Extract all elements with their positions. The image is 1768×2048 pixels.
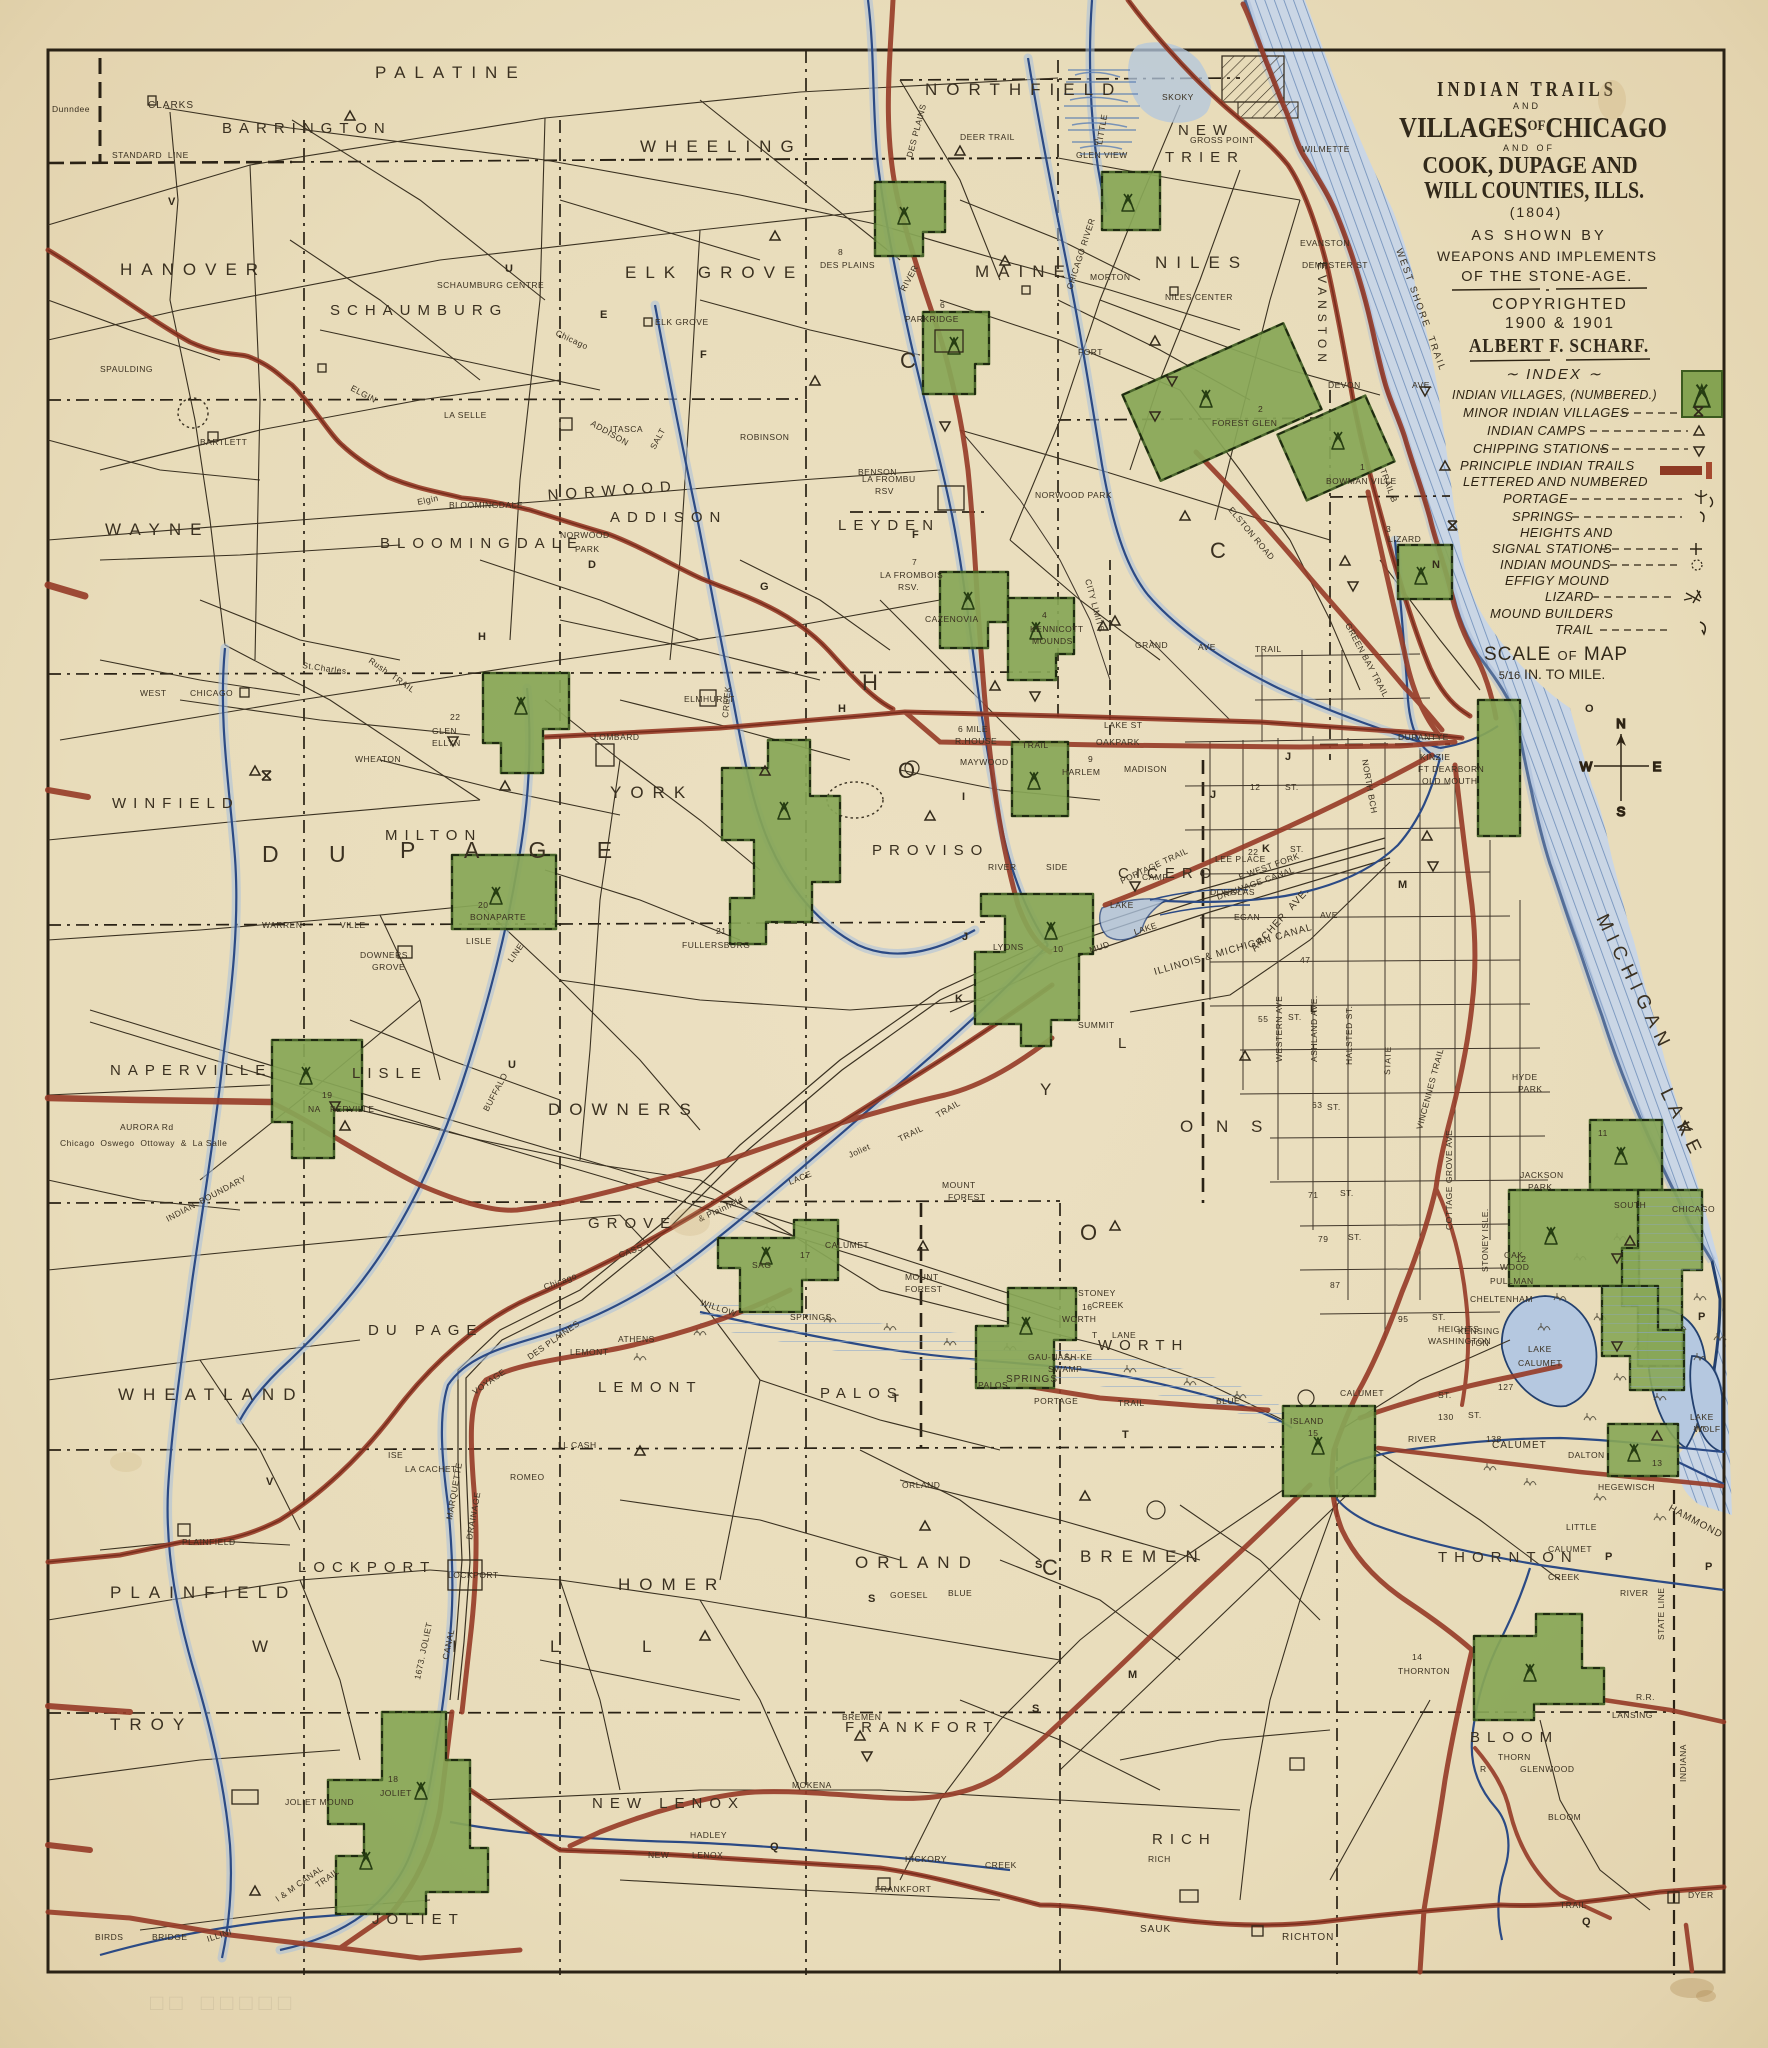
- svg-text:TON: TON: [1470, 1338, 1489, 1348]
- svg-text:SUMMIT: SUMMIT: [1078, 1020, 1115, 1030]
- svg-text:LISLE: LISLE: [466, 936, 492, 946]
- svg-text:LEYDEN: LEYDEN: [838, 517, 940, 534]
- svg-text:BARRINGTON: BARRINGTON: [222, 120, 392, 137]
- svg-text:GRAND: GRAND: [1135, 640, 1168, 650]
- svg-text:O N S: O N S: [1180, 1117, 1271, 1136]
- svg-text:STONEY: STONEY: [1078, 1288, 1116, 1298]
- svg-text:TRIER: TRIER: [1165, 149, 1245, 166]
- svg-text:JOLIET: JOLIET: [372, 1911, 465, 1928]
- svg-text:ST.: ST.: [1438, 1390, 1452, 1400]
- svg-text:MINOR INDIAN VILLAGES: MINOR INDIAN VILLAGES: [1463, 405, 1629, 420]
- svg-text:HYDE: HYDE: [1512, 1072, 1538, 1082]
- svg-text:Y: Y: [1040, 1080, 1060, 1099]
- svg-text:NEW: NEW: [648, 1850, 669, 1860]
- svg-text:6: 6: [940, 300, 945, 310]
- svg-text:CALUMET: CALUMET: [1492, 1440, 1547, 1451]
- svg-text:F: F: [700, 349, 707, 361]
- svg-text:HARLEM: HARLEM: [1062, 767, 1100, 777]
- svg-text:55: 55: [1258, 1014, 1268, 1024]
- svg-text:22: 22: [450, 712, 460, 722]
- svg-text:R: R: [1480, 1764, 1487, 1774]
- svg-text:1900 & 1901: 1900 & 1901: [1505, 315, 1615, 332]
- svg-text:GLEN: GLEN: [432, 726, 457, 736]
- svg-text:M: M: [1128, 1669, 1137, 1681]
- svg-text:VILLE: VILLE: [340, 920, 366, 930]
- svg-text:MOUNDS: MOUNDS: [1032, 636, 1073, 646]
- svg-text:ELK GROVE: ELK GROVE: [625, 263, 804, 282]
- svg-text:HADLEY: HADLEY: [690, 1830, 727, 1840]
- svg-text:LANSING: LANSING: [1612, 1710, 1653, 1720]
- svg-text:LOMBARD: LOMBARD: [594, 732, 640, 742]
- svg-text:LA CACHET: LA CACHET: [405, 1464, 457, 1474]
- svg-text:DEVON: DEVON: [1328, 380, 1361, 390]
- svg-text:C: C: [1042, 1555, 1067, 1580]
- svg-text:STATE: STATE: [1382, 1046, 1393, 1075]
- svg-text:P: P: [1698, 1311, 1705, 1323]
- svg-text:BRIDGE: BRIDGE: [152, 1932, 188, 1942]
- svg-text:FRANKFORT: FRANKFORT: [845, 1719, 999, 1736]
- svg-text:THORNTON: THORNTON: [1438, 1549, 1579, 1566]
- svg-text:NILES CENTER: NILES CENTER: [1165, 292, 1233, 302]
- svg-text:CALUMET: CALUMET: [825, 1240, 869, 1250]
- svg-text:M: M: [1398, 879, 1407, 891]
- svg-text:∼ INDEX ∼: ∼ INDEX ∼: [1505, 366, 1602, 383]
- svg-text:4: 4: [1042, 610, 1047, 620]
- svg-text:TRAIL: TRAIL: [1560, 1900, 1587, 1910]
- svg-text:THORN: THORN: [1498, 1752, 1531, 1762]
- svg-text:RICH: RICH: [1148, 1854, 1171, 1864]
- svg-text:ST.: ST.: [1468, 1410, 1482, 1420]
- svg-text:DEER TRAIL: DEER TRAIL: [960, 132, 1015, 142]
- svg-text:D: D: [588, 559, 596, 571]
- svg-text:LOCKPORT: LOCKPORT: [448, 1570, 499, 1580]
- svg-text:T: T: [892, 1393, 899, 1405]
- svg-text:STONEY ISLE.: STONEY ISLE.: [1480, 1208, 1490, 1272]
- svg-text:DALTON: DALTON: [1568, 1450, 1605, 1460]
- svg-text:V: V: [266, 1476, 274, 1488]
- svg-text:MAYWOOD: MAYWOOD: [960, 757, 1009, 767]
- svg-text:KENNICOTT: KENNICOTT: [1030, 624, 1084, 634]
- svg-text:T: T: [1122, 1429, 1129, 1441]
- svg-text:9: 9: [1088, 754, 1093, 764]
- svg-text:10: 10: [1053, 944, 1063, 954]
- svg-text:W: W: [1580, 759, 1593, 774]
- svg-text:MILTON: MILTON: [385, 827, 482, 844]
- svg-text:PARK: PARK: [1528, 1182, 1553, 1192]
- svg-text:BLOOMINGDALE: BLOOMINGDALE: [449, 500, 523, 510]
- svg-text:CALUMET: CALUMET: [1340, 1388, 1384, 1398]
- svg-text:(1804): (1804): [1510, 204, 1562, 220]
- svg-text:AVE.: AVE.: [1412, 380, 1433, 390]
- svg-text:ST.: ST.: [1285, 782, 1299, 792]
- svg-text:LITTLE: LITTLE: [1566, 1522, 1597, 1532]
- svg-text:RIVER: RIVER: [1408, 1434, 1436, 1444]
- svg-text:PALATINE: PALATINE: [375, 63, 527, 82]
- svg-text:O: O: [1585, 703, 1594, 715]
- svg-text:AND: AND: [1513, 101, 1541, 111]
- svg-text:E: E: [600, 309, 607, 321]
- svg-text:L: L: [1310, 1003, 1317, 1015]
- svg-text:PARK: PARK: [1518, 1084, 1543, 1094]
- svg-text:I: I: [962, 791, 965, 803]
- svg-text:GROSS POINT: GROSS POINT: [1190, 135, 1255, 145]
- svg-text:WHEATON: WHEATON: [355, 754, 401, 764]
- svg-text:K: K: [955, 993, 963, 1005]
- svg-text:EVANSTON: EVANSTON: [1300, 238, 1350, 248]
- svg-text:PERVILLE: PERVILLE: [330, 1104, 374, 1114]
- svg-text:OF THE STONE-AGE.: OF THE STONE-AGE.: [1461, 269, 1633, 285]
- svg-text:FOREST: FOREST: [948, 1192, 985, 1202]
- svg-text:HEGEWISCH: HEGEWISCH: [1598, 1482, 1655, 1492]
- svg-text:GLEN VIEW: GLEN VIEW: [1076, 150, 1128, 160]
- svg-text:CREEK: CREEK: [1548, 1572, 1580, 1582]
- svg-text:SPRINGS: SPRINGS: [790, 1312, 832, 1322]
- svg-text:AVE: AVE: [1320, 910, 1338, 920]
- svg-text:ST.: ST.: [1432, 1312, 1446, 1322]
- svg-text:H: H: [838, 703, 846, 715]
- svg-text:SOUTH: SOUTH: [1614, 1200, 1646, 1210]
- svg-text:CREEK: CREEK: [985, 1860, 1017, 1870]
- svg-text:Q: Q: [770, 1841, 779, 1853]
- svg-text:THORNTON: THORNTON: [1398, 1666, 1450, 1676]
- svg-text:STATE LINE: STATE LINE: [1656, 1588, 1666, 1640]
- svg-text:SPRINGS: SPRINGS: [1006, 1374, 1058, 1385]
- svg-text:WORTH: WORTH: [1062, 1314, 1096, 1324]
- svg-text:TRAIL: TRAIL: [1255, 644, 1282, 654]
- svg-text:DOUGLAS: DOUGLAS: [1210, 887, 1255, 897]
- svg-text:SPAULDING: SPAULDING: [100, 364, 153, 374]
- svg-text:GROVE: GROVE: [588, 1215, 677, 1232]
- svg-text:63: 63: [1312, 1100, 1322, 1110]
- svg-text:DES PLAINS: DES PLAINS: [820, 260, 875, 270]
- svg-text:COOK, DUPAGE AND: COOK, DUPAGE AND: [1423, 153, 1638, 179]
- svg-text:MAINE: MAINE: [975, 262, 1074, 281]
- svg-text:S: S: [1617, 804, 1626, 819]
- svg-text:LYONS: LYONS: [993, 942, 1024, 952]
- svg-text:E: E: [1653, 759, 1662, 774]
- svg-text:ORLAND: ORLAND: [902, 1480, 940, 1490]
- svg-text:H: H: [862, 670, 887, 695]
- svg-text:BREMEN: BREMEN: [1080, 1547, 1207, 1566]
- svg-text:14: 14: [1412, 1652, 1422, 1662]
- svg-text:T: T: [1092, 1330, 1098, 1340]
- svg-text:J: J: [962, 931, 968, 943]
- svg-text:ISE: ISE: [388, 1450, 403, 1460]
- svg-text:MADISON: MADISON: [1124, 764, 1167, 774]
- svg-text:MORTON: MORTON: [1090, 272, 1130, 282]
- svg-text:STANDARD LINE: STANDARD LINE: [112, 150, 189, 160]
- svg-text:F: F: [912, 529, 919, 541]
- svg-text:PORTAGE: PORTAGE: [1503, 491, 1568, 506]
- svg-text:7: 7: [912, 557, 917, 567]
- svg-text:INDIAN TRAILS: INDIAN TRAILS: [1437, 77, 1617, 101]
- svg-text:12: 12: [1250, 782, 1260, 792]
- svg-text:WILMETTE: WILMETTE: [1302, 144, 1350, 154]
- svg-text:ELLYN: ELLYN: [432, 738, 461, 748]
- svg-text:BLOOM: BLOOM: [1548, 1812, 1581, 1822]
- svg-text:ORLAND: ORLAND: [855, 1553, 980, 1572]
- svg-text:FT DEARBORN: FT DEARBORN: [1418, 764, 1484, 774]
- svg-text:V: V: [168, 196, 176, 208]
- svg-text:LA SELLE: LA SELLE: [444, 410, 487, 420]
- svg-text:EGAN: EGAN: [1234, 912, 1260, 922]
- svg-text:AURORA Rd: AURORA Rd: [120, 1122, 174, 1132]
- svg-text:WHEELING: WHEELING: [640, 137, 803, 156]
- svg-text:LIZARD: LIZARD: [1388, 534, 1421, 544]
- svg-text:S: S: [1032, 1703, 1039, 1715]
- svg-text:17: 17: [800, 1250, 810, 1260]
- svg-text:FULLERSBURG: FULLERSBURG: [682, 940, 750, 950]
- svg-text:87: 87: [1330, 1280, 1340, 1290]
- svg-text:I: I: [452, 1637, 466, 1656]
- svg-text:BLUE: BLUE: [1216, 1396, 1240, 1406]
- svg-text:6 MILE: 6 MILE: [958, 724, 988, 734]
- svg-text:EFFIGY MOUND: EFFIGY MOUND: [1505, 573, 1609, 588]
- svg-text:TROY: TROY: [110, 1715, 193, 1734]
- svg-text:21: 21: [716, 926, 726, 936]
- svg-text:CHICAGO: CHICAGO: [1672, 1204, 1715, 1214]
- svg-text:LANE: LANE: [1112, 1330, 1136, 1340]
- svg-text:TRAIL: TRAIL: [1022, 740, 1049, 750]
- svg-text:LL CASH: LL CASH: [558, 1440, 597, 1450]
- svg-text:PORTAGE: PORTAGE: [1034, 1396, 1078, 1406]
- svg-text:U: U: [508, 1059, 516, 1071]
- svg-text:1: 1: [1360, 462, 1365, 472]
- svg-text:Q: Q: [1582, 1916, 1591, 1928]
- svg-text:RICH: RICH: [1152, 1831, 1217, 1848]
- svg-text:CHIPPING STATIONS: CHIPPING STATIONS: [1473, 441, 1609, 456]
- svg-text:KINZIE: KINZIE: [1420, 752, 1450, 762]
- svg-text:OAKPARK: OAKPARK: [1096, 737, 1140, 747]
- svg-text:S: S: [868, 1593, 875, 1605]
- svg-text:WARREN: WARREN: [262, 920, 302, 930]
- svg-text:8: 8: [838, 247, 843, 257]
- svg-text:D U: D U: [262, 841, 368, 867]
- svg-text:PARKRIDGE: PARKRIDGE: [905, 314, 959, 324]
- svg-text:J: J: [1285, 751, 1291, 763]
- svg-text:DYER: DYER: [1688, 1890, 1714, 1900]
- svg-text:BENSON: BENSON: [858, 467, 897, 477]
- svg-text:MOKENA: MOKENA: [792, 1780, 832, 1790]
- svg-text:ROBINSON: ROBINSON: [740, 432, 789, 442]
- svg-text:20: 20: [478, 900, 488, 910]
- svg-text:AND OF: AND OF: [1503, 143, 1555, 153]
- svg-text:CAZENOVIA: CAZENOVIA: [925, 614, 979, 624]
- svg-text:ELK GROVE: ELK GROVE: [655, 317, 709, 327]
- svg-text:PLAINFIELD: PLAINFIELD: [110, 1583, 297, 1602]
- svg-text:JACKSON: JACKSON: [1520, 1170, 1564, 1180]
- svg-text:HICKORY: HICKORY: [905, 1854, 947, 1864]
- svg-text:OLD MOUTH: OLD MOUTH: [1422, 776, 1478, 786]
- svg-text:RSV.: RSV.: [898, 582, 919, 592]
- svg-text:NORTHFIELD: NORTHFIELD: [925, 80, 1123, 99]
- svg-text:WHEATLAND: WHEATLAND: [118, 1385, 304, 1404]
- svg-text:TRAIL: TRAIL: [1118, 1398, 1145, 1408]
- svg-text:EVANSTON: EVANSTON: [1315, 262, 1329, 367]
- svg-text:L: L: [1118, 1035, 1133, 1052]
- svg-text:P: P: [1705, 1561, 1712, 1573]
- svg-text:INDIANA: INDIANA: [1678, 1744, 1688, 1782]
- svg-text:SIGNAL STATIONS: SIGNAL STATIONS: [1492, 541, 1612, 556]
- svg-text:LEMONT: LEMONT: [570, 1347, 608, 1357]
- svg-text:HANOVER: HANOVER: [120, 260, 267, 279]
- svg-text:R.HOUSE: R.HOUSE: [955, 736, 997, 746]
- svg-text:K: K: [1262, 843, 1270, 855]
- svg-text:Chicago Oswego Ottoway & L: Chicago Oswego Ottoway & La Salle: [60, 1138, 227, 1148]
- svg-text:NEW LENOX: NEW LENOX: [592, 1795, 745, 1812]
- svg-text:ALBERT F. SCHARF.: ALBERT F. SCHARF.: [1469, 335, 1649, 357]
- svg-text:PLAINFIELD: PLAINFIELD: [182, 1537, 236, 1547]
- svg-text:GOESEL: GOESEL: [890, 1590, 928, 1600]
- svg-text:P: P: [1605, 1551, 1612, 1563]
- svg-text:SAUK: SAUK: [1140, 1924, 1171, 1935]
- svg-text:19: 19: [322, 1090, 332, 1100]
- svg-text:SPRINGS: SPRINGS: [1512, 509, 1573, 524]
- svg-text:GROVE: GROVE: [372, 962, 405, 972]
- svg-text:O: O: [898, 758, 924, 783]
- svg-text:MOUNT: MOUNT: [942, 1180, 976, 1190]
- svg-text:16: 16: [1082, 1302, 1092, 1312]
- svg-text:□□ □□□□□: □□ □□□□□: [150, 1990, 297, 2015]
- svg-text:CAMP: CAMP: [1142, 872, 1169, 882]
- svg-text:BARTLETT: BARTLETT: [200, 437, 247, 447]
- svg-text:DURANTYE: DURANTYE: [1398, 732, 1449, 742]
- svg-text:CALUMET: CALUMET: [1518, 1358, 1562, 1368]
- svg-text:LISLE: LISLE: [352, 1065, 428, 1082]
- svg-text:FORT: FORT: [1078, 347, 1103, 357]
- svg-text:SIDE: SIDE: [1046, 862, 1068, 872]
- svg-text:WOLF: WOLF: [1694, 1424, 1721, 1434]
- svg-text:BLUE: BLUE: [948, 1588, 972, 1598]
- svg-text:CHICAGO: CHICAGO: [190, 688, 233, 698]
- svg-text:SCHAUMBURG: SCHAUMBURG: [330, 302, 508, 319]
- svg-text:R.R.: R.R.: [1636, 1692, 1655, 1702]
- svg-text:WILL COUNTIES, ILLS.: WILL COUNTIES, ILLS.: [1424, 178, 1644, 204]
- svg-text:RIVER: RIVER: [988, 862, 1016, 872]
- svg-text:RSV: RSV: [875, 486, 894, 496]
- svg-text:BLOOM: BLOOM: [1470, 1729, 1559, 1746]
- svg-text:LAKE: LAKE: [1690, 1412, 1714, 1422]
- svg-text:G: G: [760, 581, 769, 593]
- svg-text:DOWNERS: DOWNERS: [548, 1100, 700, 1119]
- svg-text:47: 47: [1300, 955, 1310, 965]
- svg-text:ST.: ST.: [1348, 1232, 1362, 1242]
- svg-text:COPYRIGHTED: COPYRIGHTED: [1492, 296, 1628, 313]
- svg-text:LAKE ST: LAKE ST: [1104, 720, 1142, 730]
- svg-text:PULLMAN: PULLMAN: [1490, 1276, 1534, 1286]
- svg-text:NORWOOD: NORWOOD: [560, 530, 610, 540]
- svg-text:WESTERN AVE: WESTERN AVE: [1274, 996, 1284, 1062]
- svg-text:LEE PLACE: LEE PLACE: [1215, 854, 1266, 864]
- svg-text:NORWOOD PARK: NORWOOD PARK: [1035, 490, 1112, 500]
- svg-text:HALSTED ST.: HALSTED ST.: [1344, 1006, 1354, 1065]
- svg-text:PROVISO: PROVISO: [872, 842, 989, 859]
- svg-text:JOLIET: JOLIET: [380, 1788, 412, 1798]
- svg-text:LOCKPORT: LOCKPORT: [298, 1559, 436, 1576]
- svg-text:C: C: [900, 348, 925, 373]
- svg-text:FOREST: FOREST: [905, 1284, 942, 1294]
- svg-text:SCHAUMBURG CENTRE: SCHAUMBURG CENTRE: [437, 280, 544, 290]
- svg-text:INDIAN MOUNDS: INDIAN MOUNDS: [1500, 557, 1611, 572]
- svg-text:PARK: PARK: [575, 544, 600, 554]
- svg-text:ST.: ST.: [1340, 1188, 1354, 1198]
- svg-text:KENSING: KENSING: [1458, 1326, 1500, 1336]
- svg-text:12: 12: [1516, 1254, 1526, 1264]
- svg-text:W: W: [252, 1637, 277, 1656]
- svg-text:S: S: [1035, 1559, 1042, 1571]
- svg-text:NAPERVILLE: NAPERVILLE: [110, 1062, 272, 1079]
- svg-text:3: 3: [1386, 524, 1391, 534]
- svg-text:ISLAND: ISLAND: [1290, 1416, 1324, 1426]
- svg-text:JOLIET MOUND: JOLIET MOUND: [285, 1797, 354, 1807]
- svg-text:INDIAN VILLAGES, (NUMBERED.): INDIAN VILLAGES, (NUMBERED.): [1452, 387, 1657, 402]
- svg-text:127: 127: [1498, 1382, 1514, 1392]
- svg-text:C: C: [1210, 538, 1235, 563]
- svg-text:ST.: ST.: [1327, 1102, 1341, 1112]
- svg-text:TRAIL: TRAIL: [1555, 622, 1594, 637]
- svg-text:ST.: ST.: [1290, 844, 1304, 854]
- svg-text:WEAPONS AND IMPLEMENTS: WEAPONS AND IMPLEMENTS: [1437, 249, 1657, 264]
- svg-text:MOUND BUILDERS: MOUND BUILDERS: [1490, 606, 1613, 621]
- svg-text:13: 13: [1652, 1458, 1662, 1468]
- svg-text:18: 18: [388, 1774, 398, 1784]
- svg-text:SKOKY: SKOKY: [1162, 92, 1194, 102]
- svg-text:L: L: [642, 1637, 660, 1656]
- svg-text:SCALE OF MAP: SCALE OF MAP: [1484, 644, 1628, 665]
- svg-text:U: U: [505, 263, 513, 275]
- svg-text:GLENWOOD: GLENWOOD: [1520, 1764, 1575, 1774]
- svg-text:DU PAGE: DU PAGE: [368, 1322, 483, 1339]
- svg-text:Dunndee: Dunndee: [52, 104, 90, 114]
- svg-text:FOREST GLEN: FOREST GLEN: [1212, 418, 1277, 428]
- svg-text:ST.: ST.: [1288, 1012, 1302, 1022]
- svg-text:LEMONT: LEMONT: [598, 1379, 703, 1396]
- svg-text:LA FROMBOIS: LA FROMBOIS: [880, 570, 943, 580]
- svg-text:N: N: [1616, 716, 1625, 731]
- svg-text:WAYNE: WAYNE: [105, 520, 210, 539]
- svg-text:YORK: YORK: [610, 783, 694, 802]
- svg-text:15: 15: [1308, 1428, 1318, 1438]
- svg-text:11: 11: [1598, 1128, 1608, 1138]
- svg-text:CHELTENHAM: CHELTENHAM: [1470, 1294, 1533, 1304]
- svg-text:GAU-NASH-KE: GAU-NASH-KE: [1028, 1352, 1093, 1362]
- svg-text:BIRDS: BIRDS: [95, 1932, 123, 1942]
- svg-text:L: L: [550, 1637, 568, 1656]
- svg-text:ATHENS: ATHENS: [618, 1334, 655, 1344]
- svg-text:95: 95: [1398, 1314, 1408, 1324]
- svg-text:ROMEO: ROMEO: [510, 1472, 545, 1482]
- svg-text:PRINCIPLE INDIAN TRAILS: PRINCIPLE INDIAN TRAILS: [1460, 458, 1635, 473]
- svg-text:J: J: [1210, 789, 1216, 801]
- svg-text:N: N: [1432, 559, 1440, 571]
- svg-text:NILES: NILES: [1155, 253, 1249, 272]
- svg-text:WINFIELD: WINFIELD: [112, 795, 240, 812]
- svg-text:130: 130: [1438, 1412, 1454, 1422]
- svg-text:O: O: [1080, 1220, 1106, 1245]
- svg-text:LETTERED AND NUMBERED: LETTERED AND NUMBERED: [1463, 474, 1648, 489]
- svg-text:WEST: WEST: [140, 688, 167, 698]
- svg-text:HEIGHTS AND: HEIGHTS AND: [1520, 525, 1613, 540]
- svg-text:MOUNT: MOUNT: [905, 1272, 939, 1282]
- svg-text:INDIAN CAMPS: INDIAN CAMPS: [1487, 423, 1586, 438]
- svg-text:SAG: SAG: [752, 1260, 771, 1270]
- svg-text:RICHTON: RICHTON: [1282, 1932, 1334, 1943]
- svg-text:COTTAGE GROVE AVE: COTTAGE GROVE AVE: [1444, 1130, 1454, 1230]
- svg-text:AVE: AVE: [1198, 642, 1216, 652]
- svg-text:BONAPARTE: BONAPARTE: [470, 912, 526, 922]
- svg-text:ADDISON: ADDISON: [610, 509, 727, 526]
- svg-text:H: H: [478, 631, 486, 643]
